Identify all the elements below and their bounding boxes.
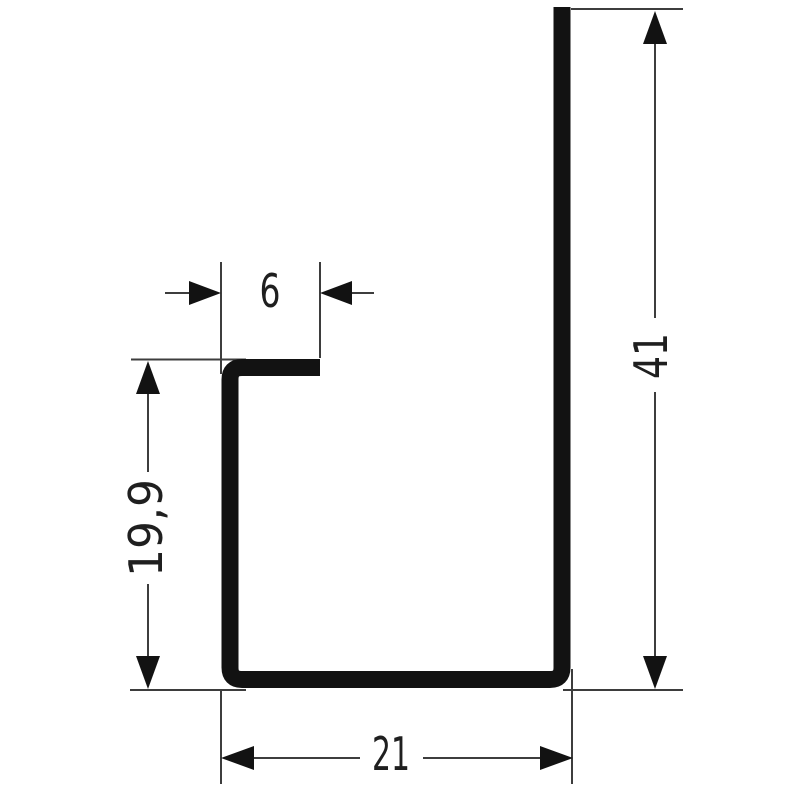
- profile-dimension-drawing: 6 41 19,9 21: [0, 0, 800, 800]
- arrow-width-left: [221, 746, 254, 770]
- arrow-height-top: [643, 11, 667, 44]
- arrow-leg-bottom: [136, 656, 160, 689]
- dimension-label-flange-width: 6: [260, 264, 281, 318]
- arrow-flange-left: [189, 281, 221, 305]
- dimension-label-leg-height: 19,9: [119, 479, 173, 577]
- technical-drawing-canvas: 6 41 19,9 21: [0, 0, 800, 800]
- arrow-width-right: [540, 746, 573, 770]
- arrow-leg-top: [136, 361, 160, 394]
- arrow-height-bottom: [643, 656, 667, 689]
- arrow-flange-right: [320, 281, 352, 305]
- dimension-arrows: [136, 11, 667, 770]
- extension-lines: [130, 9, 683, 784]
- profile-outline: [230, 7, 562, 680]
- dimension-labels: 6 41 19,9 21: [119, 264, 678, 781]
- dimension-label-overall-width: 21: [372, 727, 410, 781]
- dimension-label-overall-height: 41: [624, 333, 678, 379]
